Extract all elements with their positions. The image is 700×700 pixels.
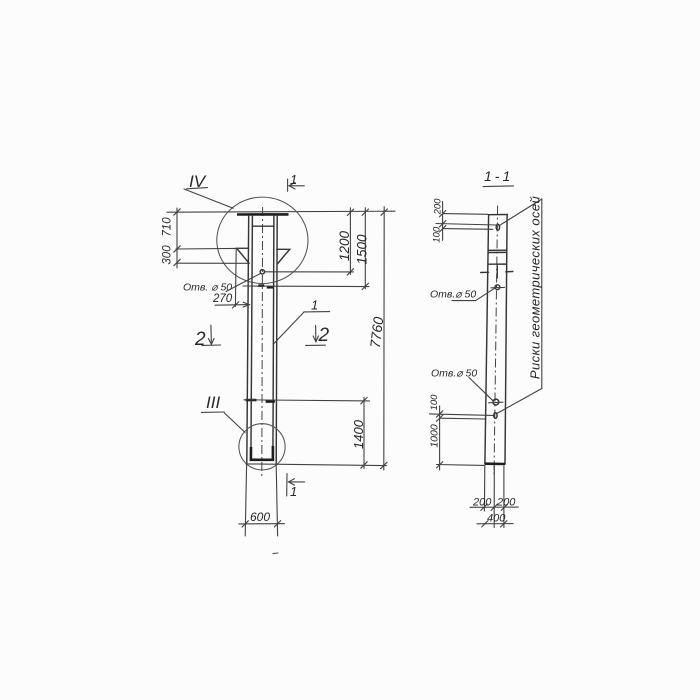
svg-text:200: 200	[433, 198, 444, 216]
svg-text:1-1: 1-1	[484, 168, 513, 184]
svg-text:Отв.⌀ 50: Отв.⌀ 50	[430, 289, 476, 301]
svg-text:100: 100	[431, 226, 442, 243]
svg-text:200: 200	[472, 497, 492, 509]
svg-text:2: 2	[318, 325, 330, 346]
svg-text:1500: 1500	[355, 234, 370, 265]
svg-text:600: 600	[250, 510, 270, 524]
svg-text:1: 1	[290, 172, 297, 187]
svg-text:1200: 1200	[337, 230, 352, 261]
svg-text:1: 1	[290, 484, 297, 499]
svg-text:Риски геометрических осей: Риски геометрических осей	[528, 196, 543, 379]
svg-text:III: III	[206, 393, 220, 412]
svg-text:100: 100	[429, 394, 440, 411]
svg-text:270: 270	[212, 293, 233, 305]
svg-text:400: 400	[487, 513, 506, 525]
svg-text:2: 2	[194, 329, 206, 350]
svg-text:Отв.⌀ 50: Отв.⌀ 50	[431, 368, 477, 380]
svg-text:300: 300	[162, 245, 174, 265]
svg-text:Отв. ⌀ 50: Отв. ⌀ 50	[183, 282, 232, 294]
svg-text:1400: 1400	[351, 419, 366, 449]
svg-text:1: 1	[311, 298, 318, 313]
svg-text:1000: 1000	[429, 424, 441, 448]
svg-text:710: 710	[162, 217, 174, 237]
svg-text:200: 200	[496, 497, 516, 509]
